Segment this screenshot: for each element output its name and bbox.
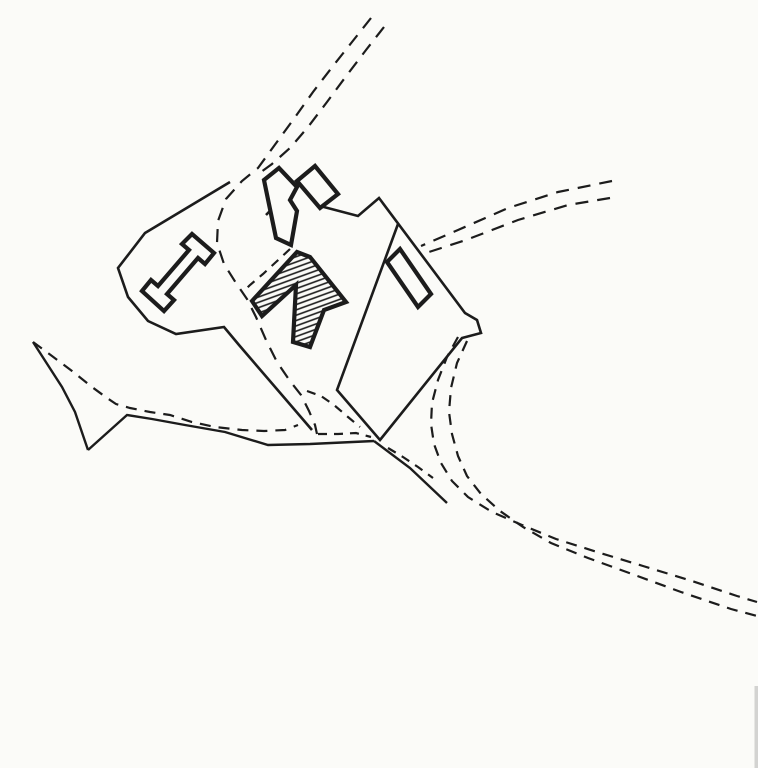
bypass-track-west-line <box>431 337 757 602</box>
scan-edge-artifact <box>755 686 758 768</box>
site-plan-drawing <box>0 0 758 768</box>
west-road-dashed-line <box>33 342 298 431</box>
bypass-track-east-line <box>449 341 757 616</box>
gate-building <box>264 168 297 245</box>
site-plan-figure <box>0 0 758 768</box>
west-road-south-edge <box>88 415 374 450</box>
hatched-range-building <box>252 252 346 347</box>
field-boundary-spike <box>33 342 88 450</box>
east-road-south-line <box>429 198 610 252</box>
north-tower-building <box>297 166 338 208</box>
junction-connector-track <box>388 448 433 478</box>
inner-fork-south-branch <box>318 433 371 437</box>
hall-building-i-plan <box>142 234 214 311</box>
east-road-north-line <box>421 181 612 246</box>
north-approach-road-east-line <box>261 27 384 172</box>
